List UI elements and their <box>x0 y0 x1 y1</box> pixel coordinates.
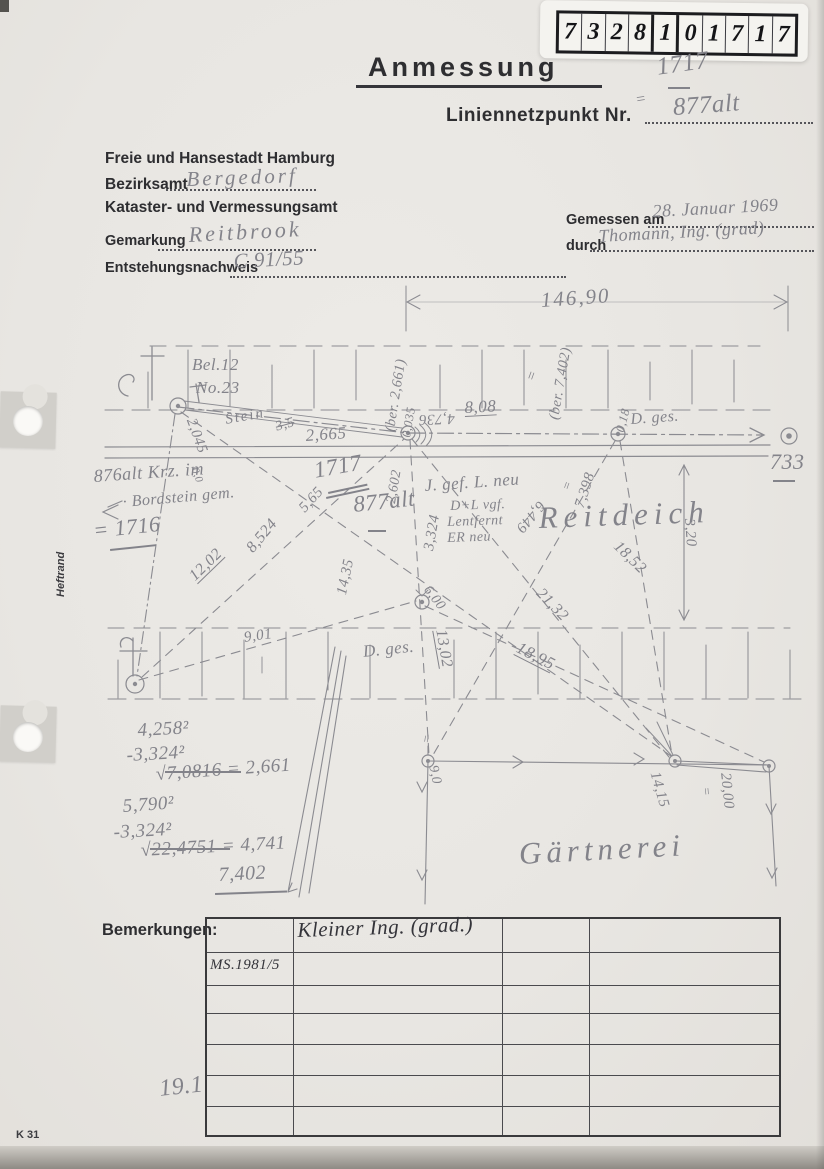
amt-line: Kataster- und Vermessungsamt <box>105 199 338 217</box>
underline <box>773 480 795 482</box>
stamp-digit: 2 <box>604 14 628 51</box>
measurement-label: 2,665 <box>305 423 347 446</box>
scan-bottom-edge <box>0 1146 824 1169</box>
stamp-digit: 1 <box>651 15 677 52</box>
entstehung-value: C 91/55 <box>233 245 305 274</box>
bezirksamt-label: Bezirksamt <box>105 176 188 194</box>
gemarkung-label: Gemarkung <box>105 233 186 249</box>
net-point-dotted-line <box>645 121 813 124</box>
title-underline <box>356 85 602 88</box>
stamp-digit: 7 <box>771 16 795 53</box>
entstehung-dotted-line <box>230 275 566 278</box>
scan-corner-mark <box>0 0 9 12</box>
scanned-survey-form: 7 3 2 8 1 0 1 7 1 7 Anmessung 1717 = Lin… <box>0 0 824 1169</box>
scan-right-edge <box>816 0 824 1169</box>
calc-result: 7,402 <box>218 862 267 887</box>
table-entry-ms: MS.1981/5 <box>210 957 280 974</box>
point-note: No.23 <box>196 378 240 398</box>
stamp-digit: 1 <box>748 16 772 53</box>
form-code: K 31 <box>16 1129 39 1141</box>
heftrand-label: Heftrand <box>55 552 67 597</box>
point-number: 733 <box>770 449 805 475</box>
measurement-label: 8,08 <box>464 396 497 418</box>
registry-number-box: 7 3 2 8 1 0 1 7 1 7 <box>556 10 799 56</box>
sketch-note: ER neu <box>447 529 491 547</box>
punch-hole-tab <box>0 705 57 762</box>
leader-at-g2 <box>646 722 673 756</box>
point-note: Bel.12 <box>192 355 239 375</box>
stamp-digit: 0 <box>676 15 702 52</box>
calc-leader-lines <box>288 647 346 897</box>
equals-mark: = <box>698 786 715 797</box>
boundary-cross-icon-lower <box>120 638 147 676</box>
measurement-label: 4,736 <box>400 409 455 428</box>
form-title: Anmessung <box>368 52 559 83</box>
calc-line: 4,258² <box>137 717 190 742</box>
underline <box>368 530 386 532</box>
sketch-note: Lentfernt <box>447 513 503 531</box>
sketch-word: D. ges. <box>630 408 680 429</box>
calc-line: 5,790² <box>122 792 175 818</box>
stamp-digit: 7 <box>559 13 582 50</box>
bezirksamt-dotted-line <box>166 188 316 191</box>
punch-hole <box>13 722 44 753</box>
net-point-value: 877alt <box>672 89 741 122</box>
measurement-label: 20,00 <box>716 772 737 810</box>
net-point-label: Liniennetzpunkt Nr. <box>446 105 632 127</box>
old-number-dash <box>668 87 690 89</box>
bemerkungen-label: Bemerkungen: <box>102 921 218 940</box>
survey-point-icons <box>126 398 797 772</box>
stamp-digit: 3 <box>581 14 605 51</box>
margin-note: 19.1 <box>158 1071 205 1102</box>
measurement-label: 146,90 <box>540 283 611 313</box>
bemerkungen-table <box>205 917 781 1137</box>
durch-dotted-line <box>590 249 814 252</box>
punch-hole <box>13 406 44 437</box>
stamp-digit: 8 <box>628 14 652 51</box>
stamp-digit: 7 <box>725 16 749 53</box>
punch-hole-tab <box>0 391 57 448</box>
measurement-label: 3,20 <box>680 518 699 547</box>
construction-rays <box>139 412 764 762</box>
